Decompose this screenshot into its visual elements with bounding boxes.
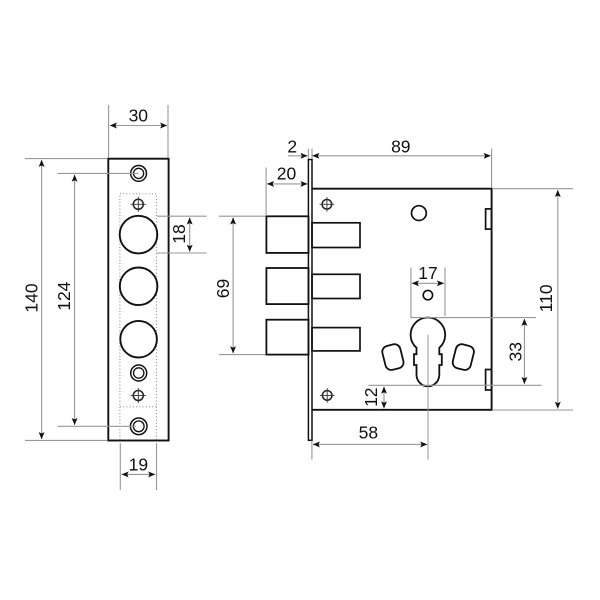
svg-text:124: 124 (54, 281, 74, 310)
svg-text:58: 58 (359, 422, 378, 442)
svg-text:20: 20 (277, 163, 297, 183)
svg-text:19: 19 (129, 454, 148, 474)
svg-text:17: 17 (418, 263, 437, 283)
svg-text:12: 12 (361, 387, 381, 406)
svg-text:69: 69 (213, 279, 233, 298)
svg-text:2: 2 (287, 136, 297, 156)
svg-text:110: 110 (536, 284, 556, 312)
svg-text:89: 89 (391, 136, 410, 156)
svg-text:33: 33 (505, 342, 525, 361)
svg-text:18: 18 (169, 224, 189, 243)
svg-text:140: 140 (21, 283, 41, 312)
svg-text:30: 30 (129, 105, 149, 125)
